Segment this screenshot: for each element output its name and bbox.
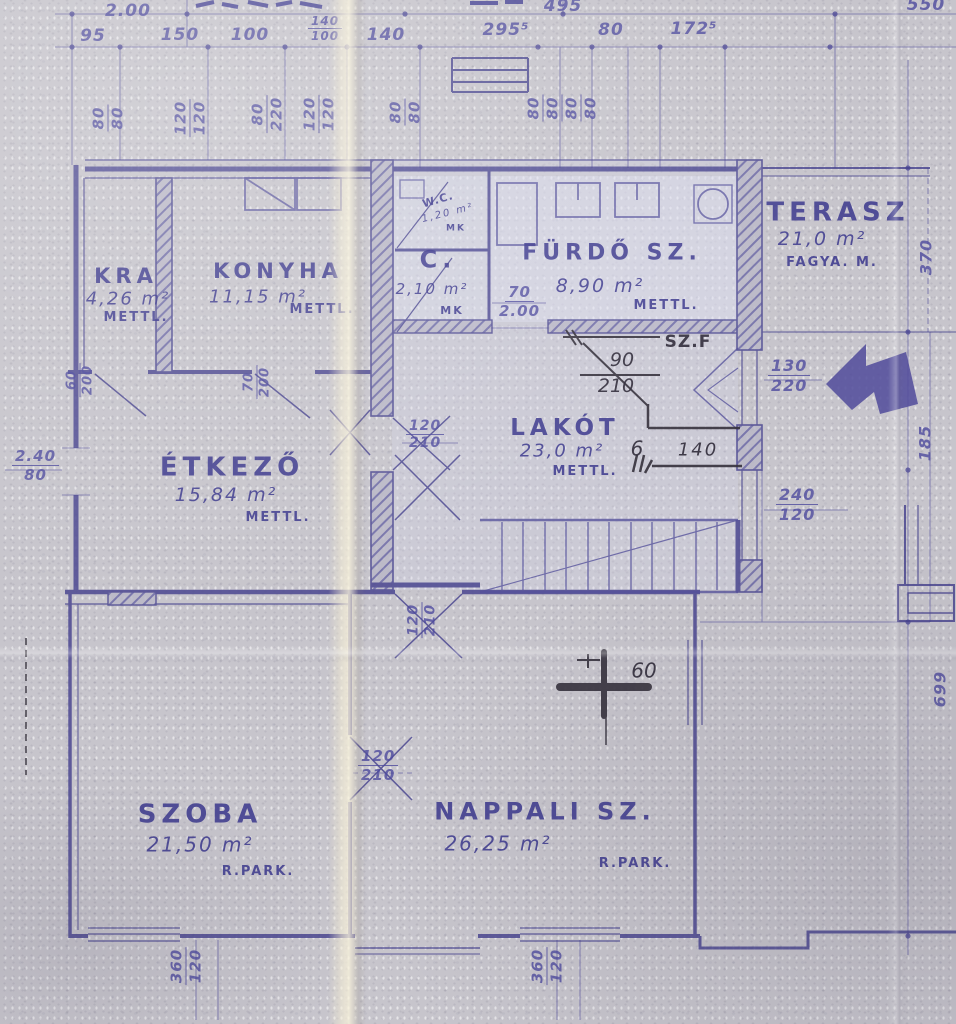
entrance-arrow xyxy=(826,344,918,414)
room-name-konyha: KONYHA xyxy=(213,260,343,282)
room-area-furdo: 8,90 m² xyxy=(556,277,644,297)
dim-window-right: 240120 xyxy=(776,485,818,524)
dim-door-lower: 120210 xyxy=(406,602,439,638)
dim-door-furdo: 702.00 xyxy=(496,283,543,320)
dim-top-95: 95 xyxy=(80,28,106,46)
room-finish-kamra: METTL. xyxy=(103,311,168,325)
room-finish-furdo: METTL. xyxy=(633,299,698,313)
dim-top-172: 172⁵ xyxy=(671,21,718,39)
pencil-dim-60: 60 xyxy=(631,661,656,682)
dim-window-terasz: 130220 xyxy=(768,356,810,395)
dim-top-140: 140 xyxy=(367,27,406,45)
dim-window-b: 120120 xyxy=(172,99,209,137)
dim-door-kamra: 60200 xyxy=(65,363,96,397)
room-area-etkezo: 15,84 m² xyxy=(175,486,278,506)
blueprint-scan: 2.00 495 550 95 150 100 140100 140 295⁵ … xyxy=(0,0,956,1024)
dim-top-140-100: 140100 xyxy=(308,14,342,43)
dim-top-200: 2.00 xyxy=(105,3,151,21)
room-name-kamra: KRA xyxy=(94,265,158,287)
dim-top-295: 295⁵ xyxy=(483,22,530,40)
dim-top-495: 495 xyxy=(544,0,583,16)
room-area-lakoter: 23,0 m² xyxy=(520,443,605,462)
room-finish-c: MK xyxy=(440,305,463,317)
room-area-szoba: 21,50 m² xyxy=(146,835,253,856)
room-finish-terasz: FAGYA. M. xyxy=(786,256,878,270)
dim-top-550: 550 xyxy=(907,0,946,15)
pencil-label-szf: SZ.F xyxy=(665,334,712,352)
dim-window-f: 8080 8080 xyxy=(525,95,600,122)
cut-off-handwriting xyxy=(196,2,523,7)
room-finish-lakoter: METTL. xyxy=(552,465,617,479)
room-name-etkezo: ÉTKEZŐ xyxy=(160,454,304,481)
room-name-furdo: FÜRDŐ SZ. xyxy=(522,241,702,264)
room-finish-nappali: R.PARK. xyxy=(599,857,672,871)
room-area-terasz: 21,0 m² xyxy=(778,230,866,250)
room-finish-etkezo: METTL. xyxy=(245,511,310,525)
room-finish-wc: MK xyxy=(446,224,466,233)
dim-right-370: 370 xyxy=(919,239,936,275)
dim-window-d: 120120 xyxy=(301,95,338,133)
dim-top-80: 80 xyxy=(598,22,624,40)
dim-door-etkezo: 2.4080 xyxy=(12,447,59,484)
dim-right-185: 185 xyxy=(918,425,935,461)
pencil-dim-90: 90 xyxy=(610,351,634,371)
dim-right-699: 699 xyxy=(933,671,950,707)
dim-window-c: 80220 xyxy=(249,95,286,133)
dim-door-konyha: 70200 xyxy=(242,365,273,399)
pencil-dim-6: 6 xyxy=(631,439,644,460)
room-area-nappali: 26,25 m² xyxy=(444,834,551,855)
room-name-lakoter: LAKÓT xyxy=(510,416,620,440)
dim-bottom-nappali: 360120 xyxy=(529,947,566,985)
room-finish-szoba: R.PARK. xyxy=(222,865,295,879)
dim-window-a: 8080 xyxy=(90,105,127,132)
dim-door-szoba: 120210 xyxy=(358,747,398,784)
room-finish-konyha: METTL. xyxy=(289,303,354,317)
pencil-dim-140: 140 xyxy=(678,442,718,461)
dim-bottom-szoba: 360120 xyxy=(168,947,205,985)
room-name-szoba: SZOBA xyxy=(138,801,263,828)
dim-window-e: 8080 xyxy=(387,99,424,126)
dim-door-lako: 120210 xyxy=(406,418,444,451)
room-name-c: C. xyxy=(420,247,457,272)
room-name-terasz: TERASZ xyxy=(766,199,909,226)
pencil-dim-210: 210 xyxy=(598,377,634,397)
room-area-c: 2,10 m² xyxy=(396,282,469,298)
room-area-kamra: 4,26 m² xyxy=(86,291,171,310)
dim-top-150: 150 xyxy=(161,27,200,45)
dim-top-100: 100 xyxy=(231,27,270,45)
room-name-nappali: NAPPALI SZ. xyxy=(434,799,656,824)
